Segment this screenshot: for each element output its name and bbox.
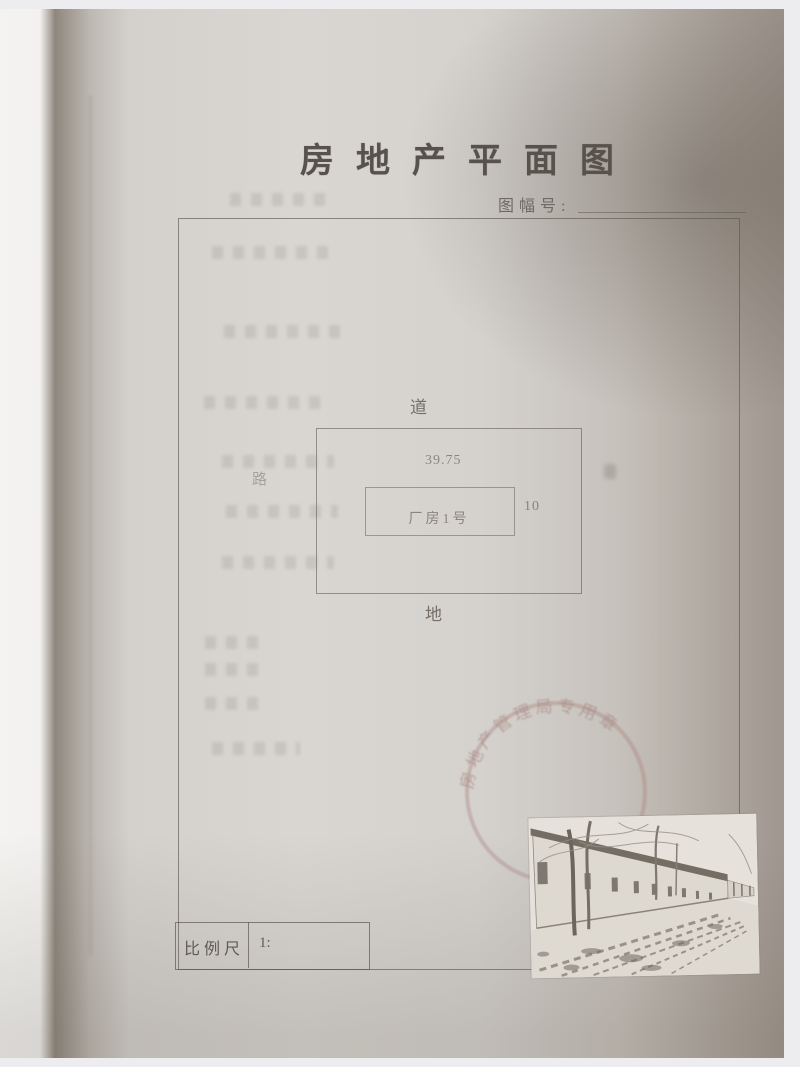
building-photo [528, 814, 759, 979]
plan-label-west-road: 路 [252, 468, 267, 489]
parcel-width-dimension: 39.75 [425, 453, 462, 469]
building-photo-graphic [528, 814, 759, 979]
photo-edge-right [784, 0, 800, 1067]
sheet-number-label: 图幅号: [498, 192, 570, 216]
photographed-document-page: 房地产平面图 图幅号: 道 39.75 厂房1号 10 地 路 比例尺 1: 房… [0, 0, 800, 1067]
photo-edge-top [0, 0, 800, 9]
photo-edge-bottom [0, 1058, 800, 1067]
bleed-through-row [230, 193, 335, 206]
scale-label: 比例尺 [184, 935, 244, 959]
plan-label-north-road: 道 [410, 393, 427, 418]
building-name-label: 厂房1号 [383, 508, 495, 528]
building-height-dimension: 10 [524, 499, 540, 515]
scale-ratio-value: 1: [259, 935, 271, 952]
page-title: 房地产平面图 [300, 133, 660, 182]
sheet-number-blank-line [578, 212, 746, 213]
scale-bar-divider [248, 922, 249, 968]
bleed-through-line [89, 95, 92, 955]
plan-label-south-land: 地 [425, 600, 442, 625]
plan-label-east-smudge [604, 464, 616, 479]
